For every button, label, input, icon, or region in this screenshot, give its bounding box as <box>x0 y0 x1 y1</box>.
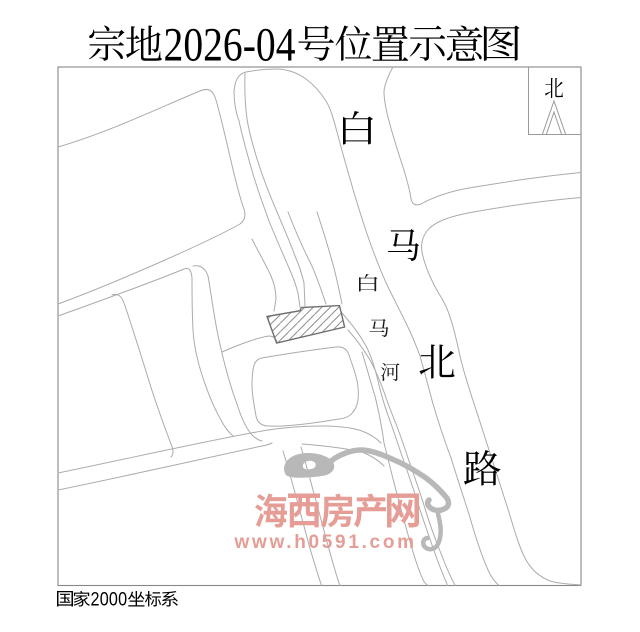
svg-text:www.h0591.com: www.h0591.com <box>234 532 417 553</box>
svg-text:2000: 2000 <box>91 588 128 610</box>
svg-text:2026-04: 2026-04 <box>164 18 296 71</box>
